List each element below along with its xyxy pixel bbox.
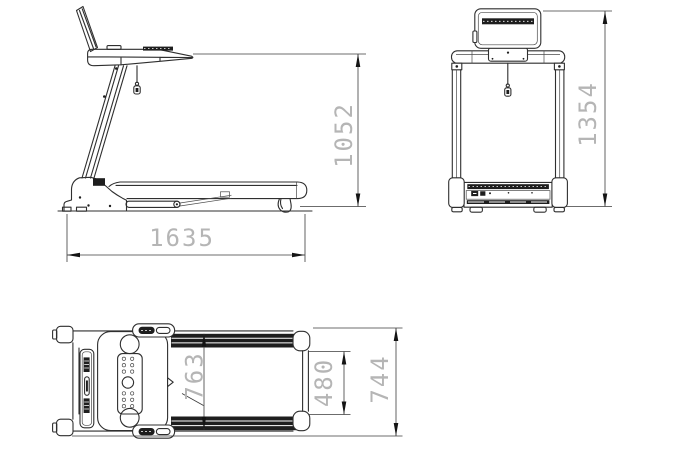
side-safety-cord [135,66,138,86]
top-display-bracket-lines [73,343,79,419]
side-support-rod [180,195,232,206]
front-post-foot-right [552,178,568,208]
front-safety-key-detail [506,90,509,94]
top-foot-tab-upper [57,326,74,343]
side-support-roller-bar [126,201,180,207]
front-display [475,9,541,49]
side-safety-key-detail [136,88,139,92]
side-uprights [82,66,127,178]
top-foot-tab-lower [57,419,74,436]
side-housing-bolt-1 [79,196,81,198]
front-view [449,9,568,212]
front-safety-cord [506,63,509,87]
top-rail-lower [171,417,297,431]
side-view [58,7,312,213]
side-housing-bolt-2 [87,204,89,206]
side-bolt-mid [103,95,106,98]
technical-drawing-canvas: 1635 1052 1354 763 480 744 [0,0,681,450]
front-posts-inner [457,70,560,178]
dim-label-deck-width: 763 [181,351,209,400]
side-housing-bolt-3 [109,205,111,207]
dim-label-overall-width: 744 [366,354,394,403]
side-fold-hinge [93,178,105,186]
top-endcap-lower [293,411,310,431]
front-display-bracket [489,48,528,61]
dimension-front-height: 1354 [543,11,612,207]
top-panel-latch [168,378,174,387]
dimension-top-deck-width: 763 [181,334,209,430]
dimension-side-length: 1635 [67,214,305,262]
front-bracket-bolt-right [523,58,525,60]
dim-label-side-height: 1052 [330,102,358,168]
front-display-port [473,31,477,43]
front-foot-pad-1 [452,207,462,211]
front-post-bolt-right [558,65,561,68]
dim-label-front-height: 1354 [574,81,602,147]
dimension-side-height: 1052 [193,54,366,207]
side-rear-foot [278,199,291,213]
top-console-panel [98,332,168,431]
side-roller-axle [176,203,178,205]
side-display [77,7,98,52]
top-rail-upper [171,334,297,348]
treadmill-three-view-drawing: 1635 1052 1354 763 480 744 [0,0,681,450]
side-console [88,49,193,65]
front-socket-dot-2 [508,192,510,194]
dim-label-side-length: 1635 [149,224,215,252]
top-display-lens-core [86,380,88,392]
front-post-bolt-left [456,65,459,68]
side-deck [109,182,307,199]
front-foot-pad-4 [554,207,564,211]
front-socket-dot-3 [531,192,533,194]
front-bracket-bolt-left [492,58,494,60]
front-bracket-bolt [507,52,509,54]
top-rear-crossbar [303,351,309,411]
front-foot-pad-3 [534,207,546,212]
dimension-top-belt-width: 480 [309,352,351,415]
top-endcap-upper [293,331,310,351]
front-post-foot-left [449,178,465,208]
dim-label-belt-width: 480 [310,358,338,407]
side-bolt-top [115,67,118,70]
front-foot-pad-2 [470,207,482,212]
front-posts [452,70,564,178]
front-socket-dot-1 [489,192,491,194]
